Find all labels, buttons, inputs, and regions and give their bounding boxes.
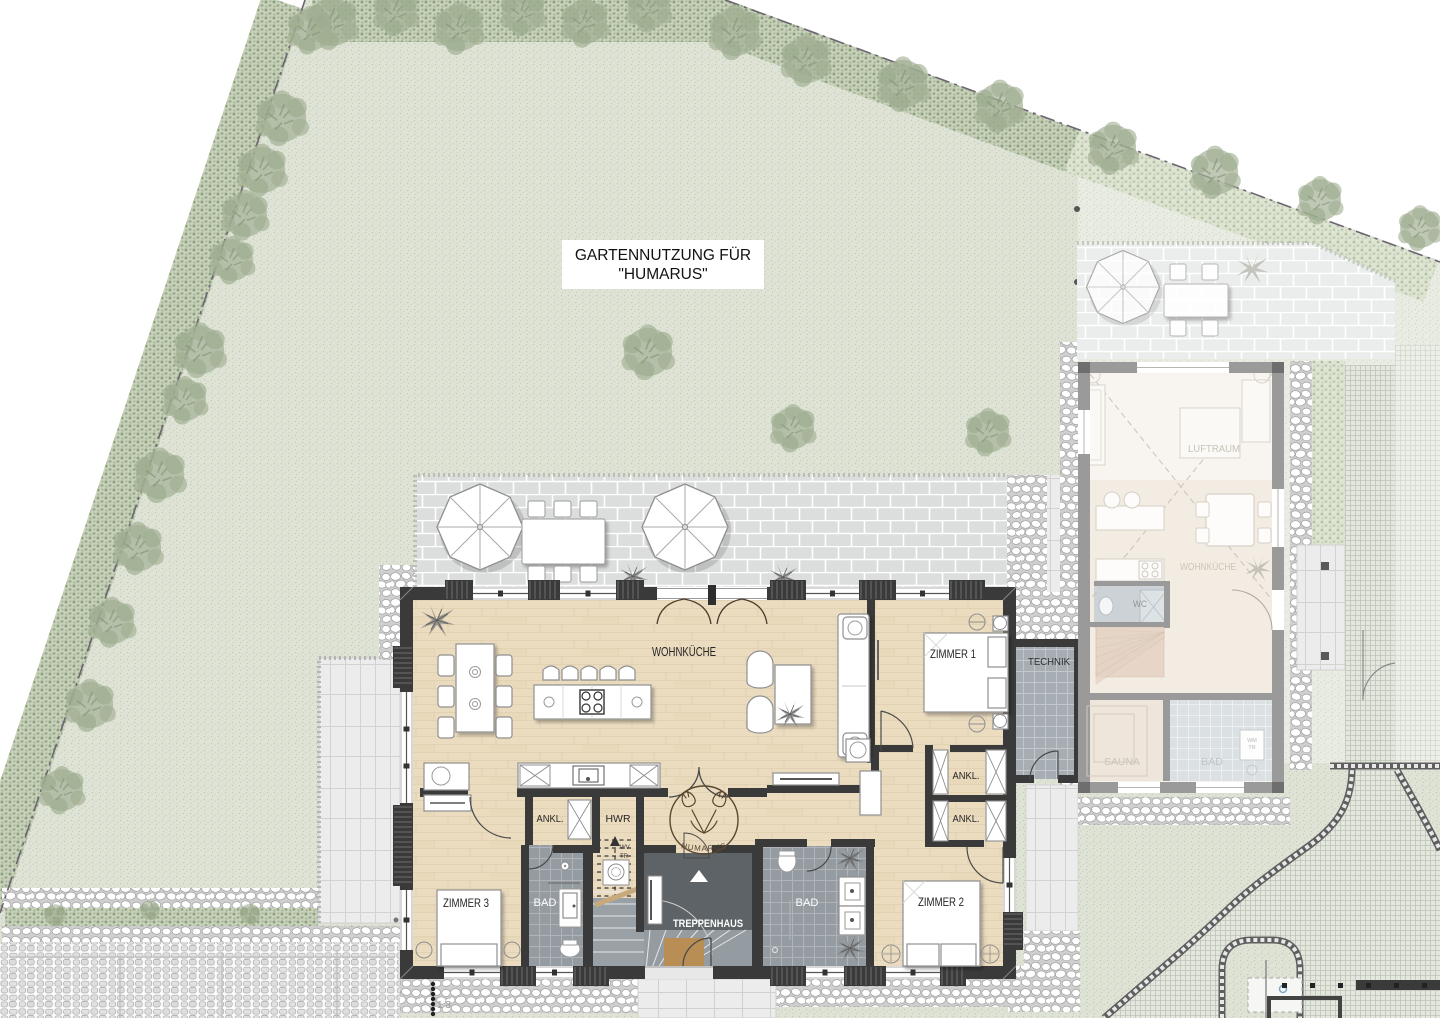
svg-text:WC: WC [1133,599,1147,609]
svg-text:BAD: BAD [534,897,557,909]
svg-text:ZIMMER 1: ZIMMER 1 [930,649,976,661]
svg-text:ANKL.: ANKL. [953,771,980,782]
svg-text:WOHNKÜCHE: WOHNKÜCHE [1180,561,1236,573]
svg-text:WM: WM [1247,738,1257,744]
svg-text:ZIMMER 2: ZIMMER 2 [918,897,964,909]
svg-text:LUFTRAUM: LUFTRAUM [1188,443,1240,455]
svg-text:TR: TR [1248,745,1255,751]
svg-text:GARTENNUTZUNG FÜR: GARTENNUTZUNG FÜR [575,246,751,264]
svg-text:TECHNIK: TECHNIK [1028,657,1070,668]
svg-text:TR: TR [620,854,629,860]
svg-text:BAD: BAD [1201,756,1223,768]
svg-text:ZIMMER 3: ZIMMER 3 [443,898,489,910]
svg-text:TREPPENHAUS: TREPPENHAUS [673,918,743,930]
svg-text:HWR: HWR [606,813,631,825]
svg-text:1 3: 1 3 [437,1000,451,1011]
svg-text:WOHNKÜCHE: WOHNKÜCHE [652,644,716,659]
svg-text:WV: WV [620,845,630,851]
svg-text:BAD: BAD [796,897,819,909]
svg-text:ANKL.: ANKL. [537,814,564,825]
svg-text:ANKL.: ANKL. [953,814,980,825]
svg-text:"HUMARUS": "HUMARUS" [618,266,707,283]
